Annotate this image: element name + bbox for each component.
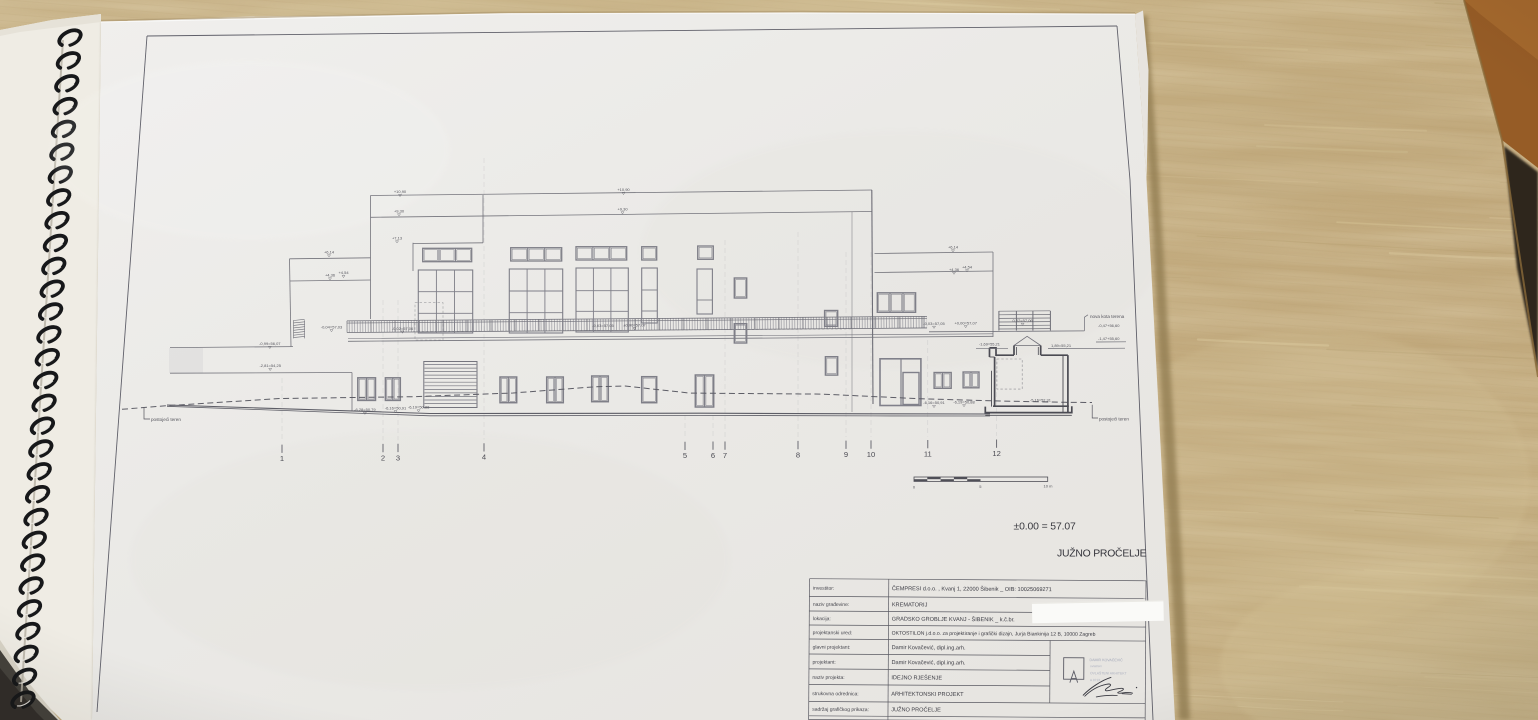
svg-text:-0,99=56,07: -0,99=56,07 (259, 341, 281, 346)
svg-text:-6,28=50,79: -6,28=50,79 (354, 407, 376, 412)
svg-text:+0,00=57,07: +0,00=57,07 (954, 320, 977, 325)
svg-text:-2,81=54,25: -2,81=54,25 (259, 363, 281, 368)
svg-text:11: 11 (924, 450, 932, 459)
svg-text:+9,30: +9,30 (617, 207, 628, 212)
svg-text:+6,14: +6,14 (324, 250, 335, 255)
svg-text:-1,69=55,21: -1,69=55,21 (979, 341, 1000, 346)
svg-text:strukovna odrednica:: strukovna odrednica: (812, 691, 858, 697)
svg-text:nova kota terena: nova kota terena (1090, 314, 1125, 319)
svg-text:projektanski ured:: projektanski ured: (813, 630, 853, 636)
svg-text:9: 9 (844, 450, 848, 459)
svg-text:+10,90: +10,90 (394, 189, 407, 194)
svg-text:+9,30: +9,30 (394, 209, 405, 214)
svg-text:postojeći teren: postojeći teren (151, 417, 181, 422)
svg-text:naziv projekta:: naziv projekta: (812, 675, 844, 681)
svg-text:-0,03=57,05: -0,03=57,05 (592, 323, 614, 328)
svg-text:postojeći teren: postojeći teren (1099, 417, 1129, 422)
svg-text:ČEMPRESI d.o.o. , Kvanj 1, 220: ČEMPRESI d.o.o. , Kvanj 1, 22000 Šibenik… (892, 585, 1052, 593)
svg-text:-1,47+55,60: -1,47+55,60 (1098, 336, 1120, 341)
svg-text:±0,00=57,07: ±0,00=57,07 (623, 322, 646, 327)
svg-text:ARHITEKTONSKI PROJEKT: ARHITEKTONSKI PROJEKT (891, 692, 964, 698)
svg-text:-6,19=50,88: -6,19=50,88 (408, 405, 430, 410)
svg-text:2: 2 (381, 453, 385, 462)
svg-text:investitor:: investitor: (813, 586, 834, 592)
svg-text:1,89=55,21: 1,89=55,21 (1051, 343, 1072, 348)
svg-text:Damir Kovačević, dipl.ing.arh.: Damir Kovačević, dipl.ing.arh. (891, 660, 965, 666)
svg-text:+7,13: +7,13 (392, 236, 403, 241)
svg-text:lokacija:: lokacija: (813, 616, 831, 622)
svg-text:OVLAŠTENI ARHITEKT: OVLAŠTENI ARHITEKT (1090, 670, 1127, 675)
svg-text:Damir Kovačević, dipl.ing.arh.: Damir Kovačević, dipl.ing.arh. (892, 645, 966, 651)
svg-text:GRADSKO GROBLJE KVANJ - ŠIBENI: GRADSKO GROBLJE KVANJ - ŠIBENIK _ k.č.br… (892, 616, 1015, 624)
svg-text:projektant:: projektant: (812, 660, 835, 666)
svg-text:+4,36: +4,36 (949, 267, 960, 272)
svg-text:1: 1 (280, 454, 284, 463)
svg-text:10 m: 10 m (1044, 484, 1054, 489)
svg-text:-6,16=50,91: -6,16=50,91 (923, 400, 945, 405)
svg-text:A 3713: A 3713 (1090, 678, 1100, 682)
svg-text:glavni projektant:: glavni projektant: (813, 645, 851, 651)
svg-text:-6,16=50,91: -6,16=50,91 (385, 405, 407, 410)
svg-text:sadržaj grafičkog prikaza:: sadržaj grafičkog prikaza: (812, 707, 869, 713)
svg-text:3: 3 (396, 453, 400, 462)
svg-text:-0,47+56,60: -0,47+56,60 (1098, 323, 1120, 328)
svg-text:DAMIR KOVAČEVIĆ: DAMIR KOVAČEVIĆ (1089, 657, 1123, 662)
svg-text:-0,04=57,03: -0,04=57,03 (321, 324, 343, 329)
svg-text:+4,36: +4,36 (325, 273, 336, 278)
svg-text:5: 5 (683, 451, 687, 460)
svg-text:±0.00 = 57.07: ±0.00 = 57.07 (1014, 522, 1077, 533)
svg-text:naziv građevine:: naziv građevine: (813, 602, 849, 608)
svg-text:8: 8 (796, 450, 800, 459)
svg-text:-0,02=57,06: -0,02=57,06 (392, 326, 414, 331)
svg-text:4: 4 (482, 453, 486, 462)
svg-text:0,02=57,06: 0,02=57,06 (1013, 318, 1034, 323)
svg-text:OKTOSTILON j.d.o.o. za projekt: OKTOSTILON j.d.o.o. za projektiranje i g… (892, 631, 1096, 638)
svg-text:-5,16=52,31: -5,16=52,31 (1030, 398, 1051, 403)
svg-text:KREMATORIJ: KREMATORIJ (892, 602, 928, 608)
svg-text:IDEJNO RJEŠENJE: IDEJNO RJEŠENJE (891, 674, 942, 681)
svg-text:JUŽNO PROČELJE: JUŽNO PROČELJE (1057, 547, 1147, 560)
svg-text:+6,14: +6,14 (948, 245, 959, 250)
svg-text:+4,54: +4,54 (962, 265, 973, 270)
svg-text:+10,90: +10,90 (617, 187, 630, 192)
svg-text:10: 10 (867, 450, 875, 459)
svg-text:+4,54: +4,54 (338, 270, 349, 275)
svg-text:12: 12 (992, 449, 1000, 458)
svg-text:6: 6 (711, 451, 715, 460)
svg-text:-0,03=57,05: -0,03=57,05 (923, 321, 945, 326)
svg-text:-6,19=50,88: -6,19=50,88 (953, 399, 975, 404)
svg-text:7: 7 (723, 451, 727, 460)
svg-text:ovlašteni: ovlašteni (1090, 664, 1102, 668)
